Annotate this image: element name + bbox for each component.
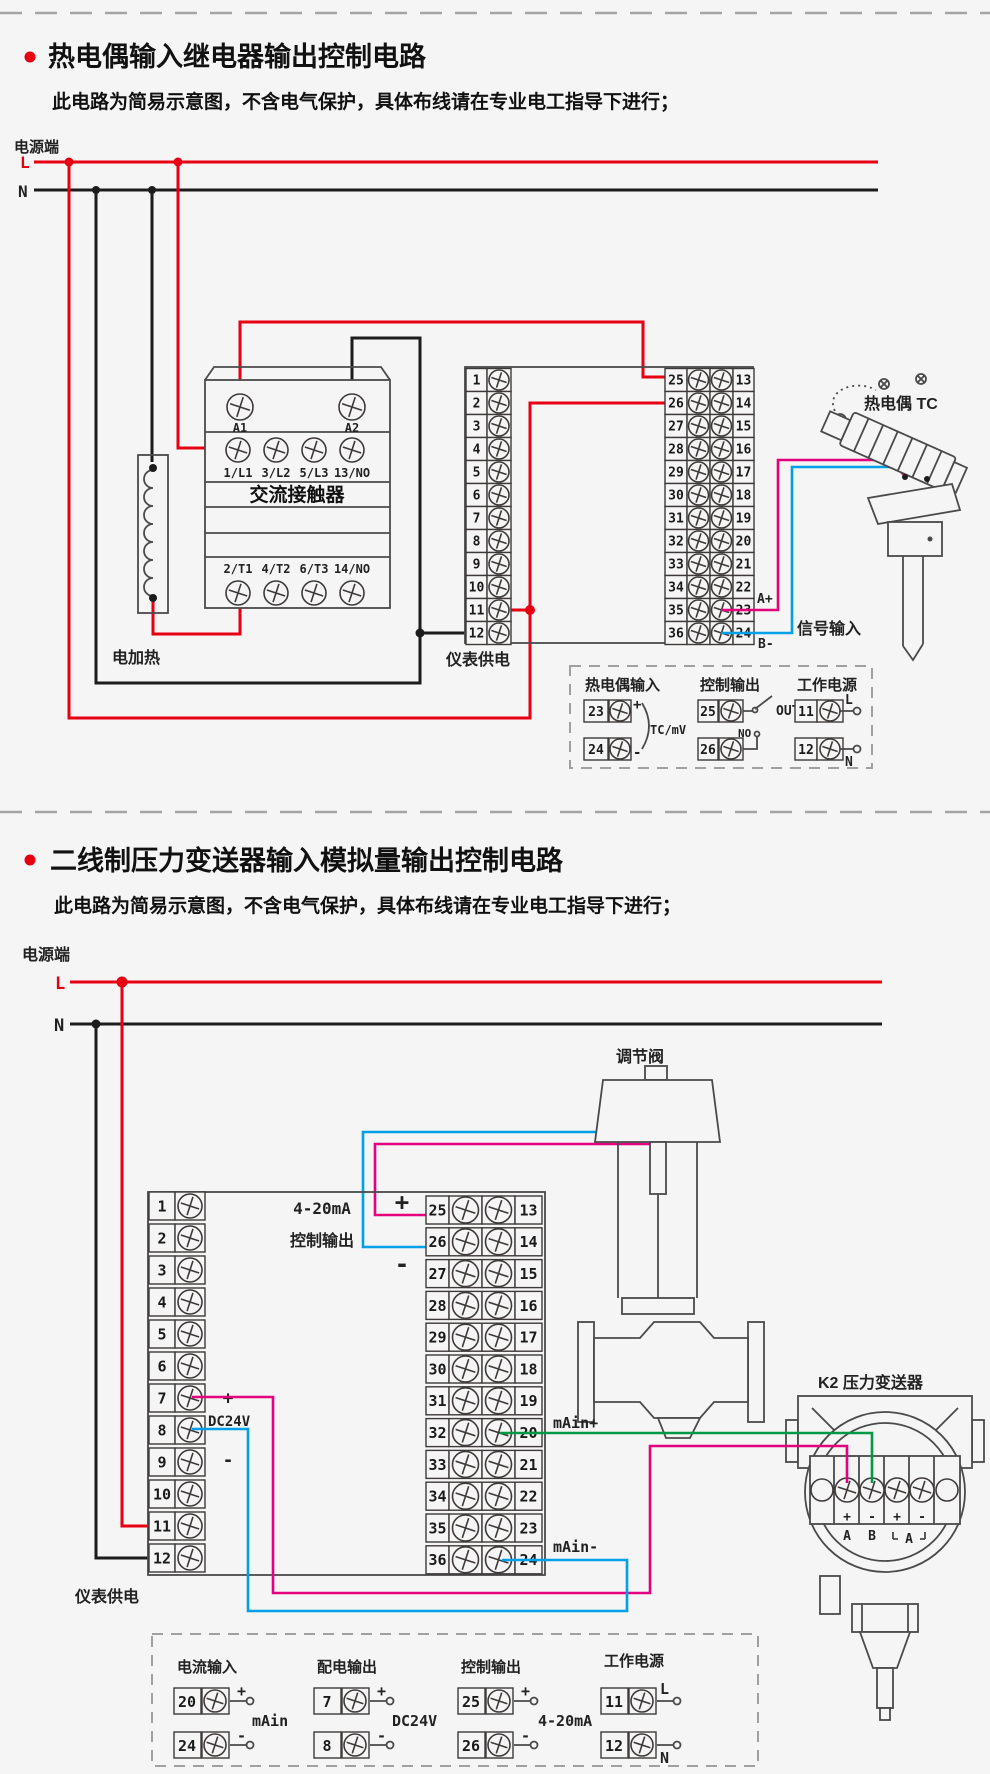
terminal-number: 27 <box>428 1265 446 1283</box>
terminal-number: 17 <box>736 466 752 481</box>
terminal-number: 33 <box>668 558 684 573</box>
legend-terminal-number: 23 <box>588 705 604 720</box>
section2-subtitle: 此电路为简易示意图，不含电气保护，具体布线请在专业电工指导下进行； <box>54 894 681 917</box>
terminal-row: 2816 <box>426 1291 542 1319</box>
legend-note: TC/mV <box>650 723 686 737</box>
terminal-row: 3422 <box>426 1482 542 1510</box>
legend-terminal-number: 11 <box>798 705 814 720</box>
terminal-row: 2 <box>466 392 511 415</box>
legend-group-title: 电流输入 <box>177 1658 237 1676</box>
legend-terminal-number: 8 <box>322 1737 331 1755</box>
terminal-row: 3321 <box>665 553 754 576</box>
legend-terminal-number: 25 <box>462 1693 480 1711</box>
terminal-number: 25 <box>668 374 684 389</box>
terminal-number: 12 <box>469 627 485 642</box>
terminal-row: 3119 <box>426 1387 542 1415</box>
terminal-row: 2715 <box>665 415 754 438</box>
terminal-number: 10 <box>469 581 485 596</box>
terminal-row: 6 <box>466 484 511 507</box>
terminal-number: 27 <box>668 420 684 435</box>
terminal-number: 34 <box>428 1488 446 1506</box>
power-terminal-label: 电源端 <box>22 945 70 964</box>
terminal-number: 20 <box>736 535 752 550</box>
legend-terminal-number: 24 <box>178 1737 196 1755</box>
legend-note: 4-20mA <box>538 1712 592 1730</box>
terminal-number: 32 <box>428 1424 446 1442</box>
legend-terminal-number: 24 <box>588 743 604 758</box>
terminal-number: 36 <box>668 627 684 642</box>
terminal-row: 3 <box>149 1256 205 1284</box>
contactor-input-label: 1/L1 <box>224 466 253 480</box>
terminal-row: 3018 <box>665 484 754 507</box>
terminal-row: 2513 <box>426 1196 542 1224</box>
terminal-number: 30 <box>428 1360 446 1378</box>
l-sign: L <box>845 693 853 708</box>
terminal-row: 4 <box>149 1288 205 1316</box>
terminal-row: 2 <box>149 1224 205 1252</box>
line-l-label: L <box>55 974 65 994</box>
transmitter-letter: A <box>905 1532 913 1547</box>
legend-group-title: 控制输出 <box>461 1658 521 1676</box>
polarity-sign: - <box>223 1450 234 1471</box>
terminal-number: 12 <box>153 1549 171 1567</box>
terminal-number: 3 <box>473 420 481 435</box>
terminal-number: 26 <box>428 1233 446 1251</box>
terminal-number: 2 <box>157 1229 166 1247</box>
terminal-number: 1 <box>157 1197 166 1215</box>
section2-title: 二线制压力变送器输入模拟量输出控制电路 <box>50 845 564 876</box>
legend-terminal-number: 20 <box>178 1693 196 1711</box>
legend-group-title: 控制输出 <box>700 676 760 694</box>
terminal-number: 4 <box>473 443 481 458</box>
line-l-label: L <box>20 153 30 172</box>
legend-box-1: 热电偶输入 23 24 + - TC/mV 控制输出 25 26 NO OUT … <box>570 666 872 770</box>
polarity-sign: + <box>395 1188 409 1216</box>
terminal-number: 31 <box>668 512 684 527</box>
polarity-sign: + <box>521 1682 530 1700</box>
polarity-sign: - <box>633 745 641 761</box>
terminal-number: 22 <box>736 581 752 596</box>
polarity-sign: - <box>521 1727 530 1745</box>
a-plus-label: A+ <box>757 592 773 607</box>
terminal-number: 13 <box>736 374 752 389</box>
legend-note: DC24V <box>392 1712 437 1730</box>
section1-title: 热电偶输入继电器输出控制电路 <box>48 41 427 72</box>
heater-label: 电加热 <box>112 648 160 667</box>
terminal-row: 2614 <box>426 1228 542 1256</box>
instrument-power-label: 仪表供电 <box>74 1587 139 1606</box>
terminal-number: 17 <box>519 1329 537 1347</box>
terminal-row: 5 <box>149 1320 205 1348</box>
terminal-number: 9 <box>473 558 481 573</box>
terminal-number: 15 <box>519 1265 537 1283</box>
terminal-row: 1 <box>149 1192 205 1220</box>
junction-dot <box>416 629 425 638</box>
terminal-number: 15 <box>736 420 752 435</box>
terminal-row: 11 <box>149 1512 205 1540</box>
contactor-input-label: 3/L2 <box>262 466 291 480</box>
terminal-number: 11 <box>469 604 485 619</box>
terminal-row: 3 <box>466 415 511 438</box>
line-n-label: N <box>18 182 28 201</box>
terminal-number: 3 <box>157 1261 166 1279</box>
terminal-number: 2 <box>473 397 481 412</box>
terminal-row: 6 <box>149 1352 205 1380</box>
terminal-number: 33 <box>428 1456 446 1474</box>
terminal-row: 5 <box>466 461 511 484</box>
legend-terminal-number: 12 <box>798 743 814 758</box>
terminal-row: 2715 <box>426 1260 542 1288</box>
legend-group-title: 工作电源 <box>797 676 857 694</box>
terminal-a1-label: A1 <box>233 421 247 435</box>
terminal-number: 31 <box>428 1392 446 1410</box>
contactor-output-label: 14/NO <box>334 562 370 576</box>
terminal-number: 14 <box>519 1233 537 1251</box>
terminal-number: 8 <box>157 1421 166 1439</box>
terminal-number: 5 <box>157 1325 166 1343</box>
bullet-icon <box>25 52 36 63</box>
legend-terminal-number: 11 <box>605 1693 623 1711</box>
terminal-row: 9 <box>466 553 511 576</box>
terminal-number: 19 <box>736 512 752 527</box>
terminal-number: 6 <box>157 1357 166 1375</box>
terminal-number: 26 <box>668 397 684 412</box>
terminal-number: 23 <box>519 1519 537 1537</box>
contactor-input-label: 13/NO <box>334 466 370 480</box>
terminal-number: 18 <box>736 489 752 504</box>
terminal-row: 2513 <box>665 369 754 392</box>
polarity-sign: - <box>237 1727 246 1745</box>
transmitter-sign: + <box>893 1510 901 1525</box>
l-sign: L <box>660 1680 669 1698</box>
terminal-row: 2917 <box>426 1323 542 1351</box>
terminal-row: 3321 <box>426 1450 542 1478</box>
terminal-number: 29 <box>668 466 684 481</box>
instrument-power-label: 仪表供电 <box>445 650 510 669</box>
transmitter-label: K2 压力变送器 <box>818 1373 924 1392</box>
terminal-number: 35 <box>668 604 684 619</box>
terminal-row: 3220 <box>665 530 754 553</box>
legend-note: mAin <box>252 1712 288 1730</box>
terminal-number: 10 <box>153 1485 171 1503</box>
terminal-row: 3119 <box>665 507 754 530</box>
terminal-number: 25 <box>428 1201 446 1219</box>
terminal-row: 9 <box>149 1448 205 1476</box>
line-n-label: N <box>54 1016 64 1036</box>
terminal-number: 29 <box>428 1329 446 1347</box>
contactor-output-label: 2/T1 <box>224 562 253 576</box>
dc24v-label: DC24V <box>208 1414 251 1430</box>
terminal-row: 11 <box>466 599 511 622</box>
legend-group-title: 配电输出 <box>317 1658 377 1676</box>
contactor-output-label: 6/T3 <box>300 562 329 576</box>
control-output-label: 控制输出 <box>290 1231 354 1250</box>
polarity-sign: - <box>395 1250 409 1278</box>
terminal-number: 6 <box>473 489 481 504</box>
terminal-number: 21 <box>519 1456 537 1474</box>
legend-terminal-number: 25 <box>700 705 716 720</box>
terminal-number: 7 <box>157 1389 166 1407</box>
ac-contactor: A1 A2 1/L1 3/L2 5/L3 13/NO 交流接触器 2/T1 4/… <box>205 367 390 608</box>
contactor-output-label: 4/T2 <box>262 562 291 576</box>
legend-terminal-number: 26 <box>700 743 716 758</box>
terminal-number: 36 <box>428 1551 446 1569</box>
terminal-number: 9 <box>157 1453 166 1471</box>
terminal-row: 8 <box>466 530 511 553</box>
terminal-number: 16 <box>519 1297 537 1315</box>
terminal-number: 5 <box>473 466 481 481</box>
terminal-row: 2816 <box>665 438 754 461</box>
terminal-number: 22 <box>519 1488 537 1506</box>
terminal-row: 10 <box>466 576 511 599</box>
contactor-input-label: 5/L3 <box>300 466 329 480</box>
terminal-number: 34 <box>668 581 684 596</box>
n-sign: N <box>660 1749 669 1767</box>
polarity-sign: + <box>223 1388 234 1409</box>
terminal-row: 12 <box>149 1544 205 1572</box>
terminal-number: 11 <box>153 1517 171 1535</box>
legend-terminal-number: 12 <box>605 1737 623 1755</box>
polarity-sign: + <box>237 1682 246 1700</box>
terminal-row: 10 <box>149 1480 205 1508</box>
polarity-sign: - <box>377 1727 386 1745</box>
terminal-number: 4 <box>157 1293 166 1311</box>
terminal-number: 14 <box>736 397 752 412</box>
main-minus-label: mAin- <box>553 1538 598 1556</box>
terminal-number: 7 <box>473 512 481 527</box>
terminal-row: 2917 <box>665 461 754 484</box>
section1-subtitle: 此电路为简易示意图，不含电气保护，具体布线请在专业电工指导下进行； <box>52 90 679 113</box>
terminal-number: 18 <box>519 1360 537 1378</box>
wiring-diagram: 热电偶输入继电器输出控制电路 此电路为简易示意图，不含电气保护，具体布线请在专业… <box>0 0 990 1774</box>
screw-terminal-icon <box>811 1479 833 1501</box>
terminal-number: 13 <box>519 1201 537 1219</box>
terminal-number: 19 <box>519 1392 537 1410</box>
no-contact-label: NO <box>738 727 752 740</box>
transmitter-sign: + <box>843 1510 851 1525</box>
legend-terminal-number: 26 <box>462 1737 480 1755</box>
polarity-sign: + <box>377 1682 386 1700</box>
bullet-icon <box>25 855 36 866</box>
thermocouple-label: 热电偶 TC <box>864 394 938 413</box>
signal-input-label: 信号输入 <box>797 619 861 638</box>
junction-dot <box>525 605 535 615</box>
terminal-row: 2614 <box>665 392 754 415</box>
terminal-row: 3523 <box>426 1514 542 1542</box>
legend-terminal-number: 7 <box>322 1693 331 1711</box>
terminal-number: 28 <box>668 443 684 458</box>
output-range-label: 4-20mA <box>293 1199 351 1218</box>
terminal-a2-label: A2 <box>345 421 359 435</box>
contactor-label: 交流接触器 <box>249 483 345 506</box>
terminal-row: 3018 <box>426 1355 542 1383</box>
legend-group-title: 热电偶输入 <box>585 676 660 694</box>
transmitter-letter: A <box>843 1529 851 1544</box>
main-plus-label: mAin+ <box>553 1414 598 1432</box>
terminal-row: 3422 <box>665 576 754 599</box>
terminal-number: 8 <box>473 535 481 550</box>
terminal-number: 21 <box>736 558 752 573</box>
polarity-sign: + <box>633 697 641 713</box>
terminal-number: 28 <box>428 1297 446 1315</box>
b-minus-label: B- <box>758 637 774 652</box>
valve-label: 调节阀 <box>616 1047 664 1066</box>
terminal-number: 1 <box>473 374 481 389</box>
n-sign: N <box>845 755 853 770</box>
terminal-number: 35 <box>428 1519 446 1537</box>
transmitter-letter: B <box>868 1529 876 1544</box>
terminal-row: 7 <box>466 507 511 530</box>
terminal-row: 12 <box>466 622 511 645</box>
terminal-number: 16 <box>736 443 752 458</box>
terminal-number: 30 <box>668 489 684 504</box>
transmitter-sign: - <box>868 1510 876 1525</box>
terminal-row: 4 <box>466 438 511 461</box>
transmitter-sign: - <box>918 1510 926 1525</box>
legend-group-title: 工作电源 <box>604 1652 664 1670</box>
screw-terminal-icon <box>936 1479 958 1501</box>
terminal-number: 32 <box>668 535 684 550</box>
wiring-diagram-page: 热电偶输入继电器输出控制电路 此电路为简易示意图，不含电气保护，具体布线请在专业… <box>0 0 990 1774</box>
terminal-row: 1 <box>466 369 511 392</box>
